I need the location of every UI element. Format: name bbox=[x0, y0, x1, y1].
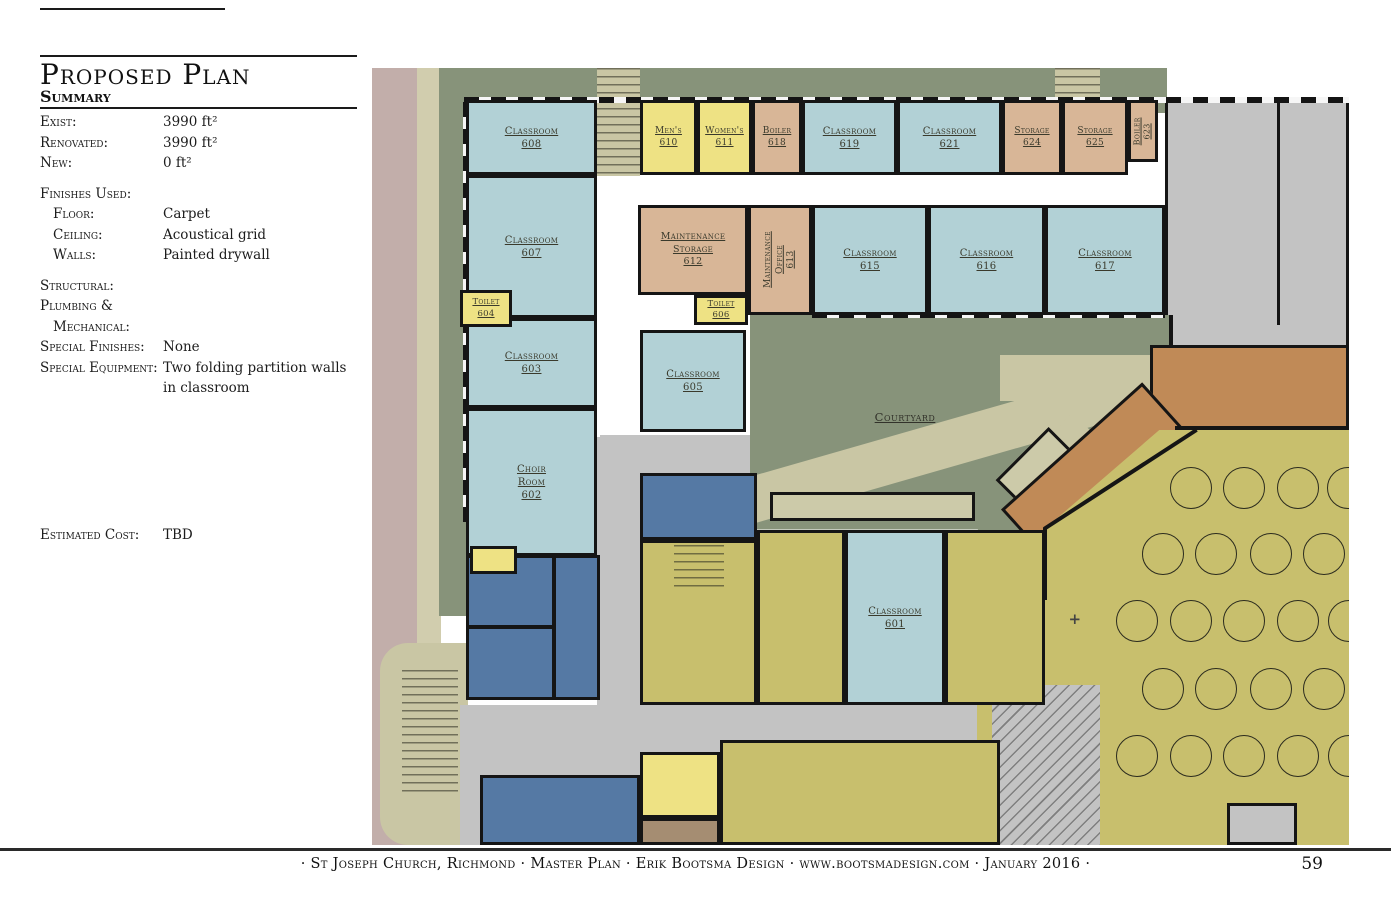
restrooms-right-601 bbox=[945, 530, 1045, 705]
hall-table bbox=[1223, 600, 1265, 642]
summary-row-label: Exist: bbox=[40, 112, 163, 133]
corridor-gap-vert bbox=[600, 540, 640, 705]
room-room-yellow-small bbox=[470, 546, 517, 574]
room-classroom-601: Classroom601 bbox=[845, 530, 945, 705]
hall-table bbox=[1142, 533, 1184, 575]
classroom-605-label: Classroom605 bbox=[666, 368, 719, 394]
page: Proposed Plan Summary Exist:3990 ft²Reno… bbox=[0, 0, 1391, 900]
hall-entry bbox=[1227, 803, 1297, 845]
room-classroom-615: Classroom615 bbox=[812, 205, 928, 315]
summary-row-label: Floor: bbox=[40, 204, 163, 225]
hall-table bbox=[1170, 600, 1212, 642]
classroom-619-label: Classroom619 bbox=[823, 125, 876, 151]
summary-row: New:0 ft² bbox=[40, 153, 362, 174]
maintenance-storage-612-label: MaintenanceStorage612 bbox=[661, 231, 726, 268]
summary-row-value bbox=[163, 317, 362, 338]
summary-row: Structural: bbox=[40, 276, 362, 297]
summary-row-label: Special Finishes: bbox=[40, 337, 163, 358]
summary-row: Mechanical: bbox=[40, 317, 362, 338]
toilet-606-label: Toilet606 bbox=[707, 299, 734, 321]
summary-row: Estimated Cost:TBD bbox=[40, 525, 362, 546]
summary-row: Floor:Carpet bbox=[40, 204, 362, 225]
courtyard-label: Courtyard bbox=[875, 410, 936, 424]
room-olive-bottom bbox=[720, 740, 1000, 845]
footer-text: · St Joseph Church, Richmond · Master Pl… bbox=[0, 856, 1391, 872]
hall-table bbox=[1116, 735, 1158, 777]
summary-row-value: Carpet bbox=[163, 204, 362, 225]
summary-rule bbox=[40, 107, 357, 109]
classroom-617-label: Classroom617 bbox=[1078, 247, 1131, 273]
room-classroom-616: Classroom616 bbox=[928, 205, 1045, 315]
courtyard-plaza bbox=[770, 492, 975, 521]
room-brown-bottom bbox=[640, 818, 720, 845]
summary-heading: Summary bbox=[40, 87, 111, 106]
summary-row-label: Walls: bbox=[40, 245, 163, 266]
room-toilet-606: Toilet606 bbox=[694, 295, 748, 325]
page-number: 59 bbox=[1301, 854, 1323, 874]
classroom-601-label: Classroom601 bbox=[868, 605, 921, 631]
summary-row-label: Structural: bbox=[40, 276, 163, 297]
summary-row-label: Estimated Cost: bbox=[40, 525, 163, 546]
storage-625-label: Storage625 bbox=[1077, 126, 1112, 149]
narthex bbox=[1150, 345, 1349, 431]
footer-rule bbox=[0, 848, 1391, 851]
classroom-616-label: Classroom616 bbox=[960, 247, 1013, 273]
hall-table bbox=[1277, 467, 1319, 509]
summary-row: Special Finishes:None bbox=[40, 337, 362, 358]
summary-row: Special Equipment:Two folding partition … bbox=[40, 358, 362, 399]
summary-row-value bbox=[163, 276, 362, 297]
summary-row: Finishes Used: bbox=[40, 184, 362, 205]
summary-row: Renovated:3990 ft² bbox=[40, 133, 362, 154]
room-classroom-619: Classroom619 bbox=[802, 100, 897, 175]
hall-table bbox=[1250, 668, 1292, 710]
summary-row: Ceiling:Acoustical grid bbox=[40, 225, 362, 246]
room-storage-625: Storage625 bbox=[1062, 100, 1128, 175]
summary-row-label: Mechanical: bbox=[40, 317, 163, 338]
summary-row-value bbox=[163, 184, 362, 205]
mens-610-label: Men's610 bbox=[655, 126, 682, 149]
hall-wall-top bbox=[1175, 426, 1349, 430]
summary-row-label: Renovated: bbox=[40, 133, 163, 154]
summary-row-value: TBD bbox=[163, 525, 362, 546]
choir-room-602-label: ChoirRoom602 bbox=[517, 463, 546, 502]
room-choir-room-602: ChoirRoom602 bbox=[466, 408, 597, 556]
room-womens-611: Women's611 bbox=[697, 100, 752, 175]
office-block-b bbox=[466, 626, 555, 700]
summary-row-label: Special Equipment: bbox=[40, 358, 163, 399]
summary-row-value: Two folding partition walls in classroom bbox=[163, 358, 362, 399]
hall-stairs bbox=[992, 685, 1100, 845]
room-classroom-608: Classroom608 bbox=[466, 100, 597, 175]
hall-table bbox=[1223, 467, 1265, 509]
room-boiler-623: Boiler623 bbox=[1128, 100, 1158, 162]
entry-stairs-top bbox=[597, 68, 640, 176]
floor-plan: Classroom608Men's610Women's611Boiler618C… bbox=[372, 68, 1349, 845]
summary-row-value: Acoustical grid bbox=[163, 225, 362, 246]
hall-table bbox=[1170, 467, 1212, 509]
summary-row-value: None bbox=[163, 337, 362, 358]
classroom-603-label: Classroom603 bbox=[505, 350, 558, 376]
hall-table bbox=[1277, 600, 1319, 642]
room-classroom-603: Classroom603 bbox=[466, 318, 597, 408]
corridor-right-top bbox=[1165, 100, 1349, 380]
classroom-621-label: Classroom621 bbox=[923, 125, 976, 151]
room-classroom-605: Classroom605 bbox=[640, 330, 746, 432]
classroom-608-label: Classroom608 bbox=[505, 125, 558, 151]
wall-corridor-right-divider bbox=[1277, 100, 1280, 325]
summary-row-value bbox=[163, 296, 362, 317]
hall-table bbox=[1303, 668, 1345, 710]
cross-marker: + bbox=[1068, 610, 1081, 628]
boiler-623-label: Boiler623 bbox=[1133, 117, 1154, 145]
summary-row-label: New: bbox=[40, 153, 163, 174]
womens-611-label: Women's611 bbox=[705, 126, 744, 149]
summary-row: Plumbing & bbox=[40, 296, 362, 317]
summary-row-label: Plumbing & bbox=[40, 296, 163, 317]
summary-row-value: Painted drywall bbox=[163, 245, 362, 266]
classroom-615-label: Classroom615 bbox=[843, 247, 896, 273]
porch-steps bbox=[402, 670, 458, 798]
room-storage-624: Storage624 bbox=[1002, 100, 1062, 175]
maintenance-office-613-label: MaintenanceOffice613 bbox=[762, 232, 797, 289]
boiler-618-label: Boiler618 bbox=[763, 126, 792, 149]
storage-624-label: Storage624 bbox=[1014, 126, 1049, 149]
hall-table bbox=[1195, 533, 1237, 575]
room-maintenance-office-613: MaintenanceOffice613 bbox=[748, 205, 812, 315]
hall-table bbox=[1142, 668, 1184, 710]
room-boiler-618: Boiler618 bbox=[752, 100, 802, 175]
hall-table bbox=[1277, 735, 1319, 777]
room-yellow-bottom bbox=[640, 752, 720, 818]
classroom-607-label: Classroom607 bbox=[505, 234, 558, 260]
toilet-604-label: Toilet604 bbox=[472, 297, 499, 319]
room-olive-left-601 bbox=[757, 530, 845, 705]
office-block-c bbox=[553, 555, 600, 700]
hall-table bbox=[1223, 735, 1265, 777]
summary-panel: Exist:3990 ft²Renovated:3990 ft²New:0 ft… bbox=[40, 112, 362, 545]
hall-table bbox=[1250, 533, 1292, 575]
summary-row: Exist:3990 ft² bbox=[40, 112, 362, 133]
hall-table bbox=[1303, 533, 1345, 575]
restroom-stairs bbox=[674, 545, 724, 591]
hall-table bbox=[1170, 735, 1212, 777]
summary-row-value: 3990 ft² bbox=[163, 112, 362, 133]
hall-table bbox=[1195, 668, 1237, 710]
summary-row-value: 0 ft² bbox=[163, 153, 362, 174]
title-rule bbox=[40, 55, 357, 57]
room-toilet-604: Toilet604 bbox=[460, 290, 512, 327]
room-mens-610: Men's610 bbox=[640, 100, 697, 175]
office-below-605 bbox=[640, 473, 757, 540]
summary-row-label: Finishes Used: bbox=[40, 184, 163, 205]
top-rule bbox=[40, 8, 225, 10]
room-blue-bottom bbox=[480, 775, 640, 845]
hall-table bbox=[1116, 600, 1158, 642]
summary-row-value: 3990 ft² bbox=[163, 133, 362, 154]
room-classroom-617: Classroom617 bbox=[1045, 205, 1165, 315]
room-classroom-621: Classroom621 bbox=[897, 100, 1002, 175]
summary-row-label: Ceiling: bbox=[40, 225, 163, 246]
summary-row: Walls:Painted drywall bbox=[40, 245, 362, 266]
room-maintenance-storage-612: MaintenanceStorage612 bbox=[638, 205, 748, 295]
